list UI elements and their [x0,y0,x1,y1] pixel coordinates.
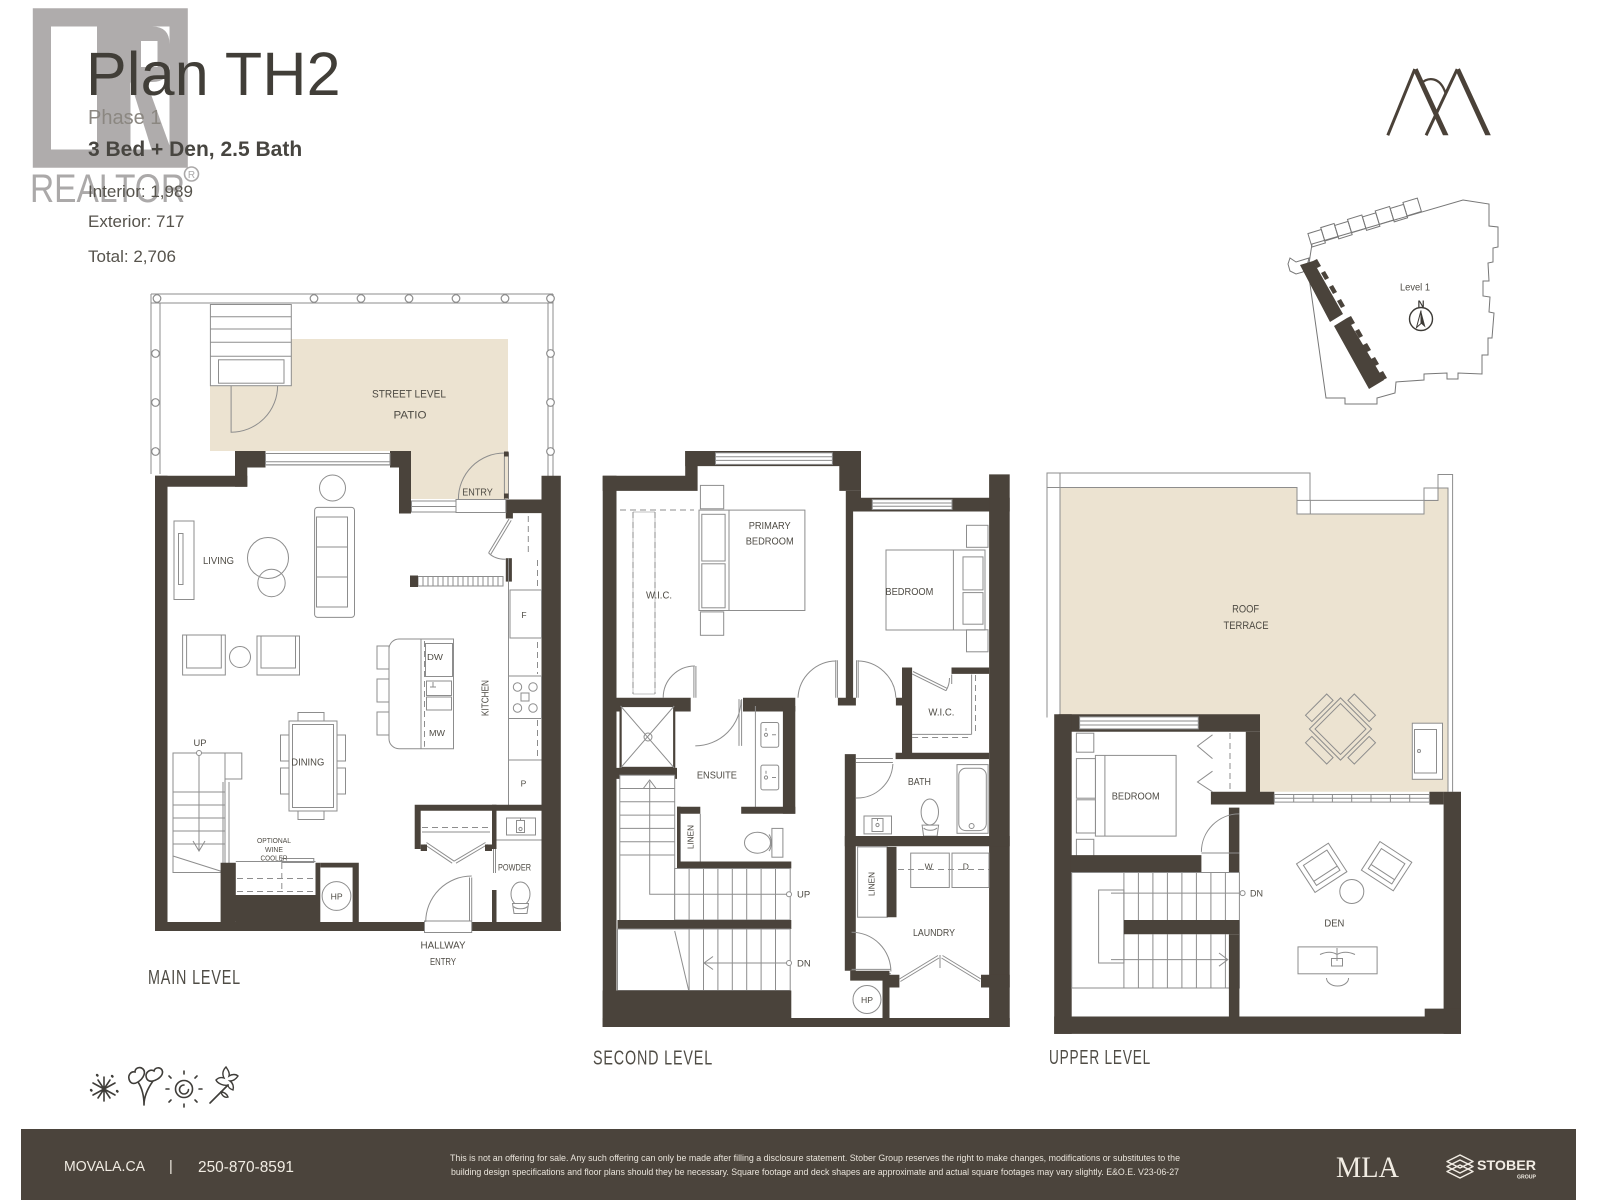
svg-text:MLA: MLA [1336,1151,1399,1184]
svg-text:ROOF: ROOF [1232,604,1259,616]
svg-text:UP: UP [194,738,207,749]
svg-text:Interior: 1,989: Interior: 1,989 [88,182,193,201]
svg-text:MW: MW [429,728,445,738]
svg-text:LAUNDRY: LAUNDRY [913,928,955,939]
svg-text:DW: DW [427,652,443,662]
svg-text:COOLER: COOLER [261,856,288,863]
svg-text:Exterior: 717: Exterior: 717 [88,212,184,231]
svg-text:STOBER: STOBER [1477,1158,1536,1173]
svg-text:STREET LEVEL: STREET LEVEL [372,388,446,400]
svg-text:Total: 2,706: Total: 2,706 [88,247,176,266]
svg-text:Phase 1: Phase 1 [88,107,161,129]
svg-text:PATIO: PATIO [394,409,427,421]
svg-text:MOVALA.CA: MOVALA.CA [64,1159,145,1175]
svg-text:W.I.C.: W.I.C. [646,591,672,602]
svg-text:UP: UP [797,890,810,901]
svg-text:F: F [521,610,526,620]
svg-text:LIVING: LIVING [203,556,234,567]
svg-text:WINE: WINE [265,847,283,854]
svg-text:BEDROOM: BEDROOM [746,537,794,548]
svg-text:GROUP: GROUP [1517,1175,1536,1181]
svg-text:KITCHEN: KITCHEN [481,680,492,716]
svg-text:ENTRY: ENTRY [430,956,456,968]
svg-text:POWDER: POWDER [498,863,531,873]
svg-text:P: P [521,779,527,789]
svg-text:Level 1: Level 1 [1400,283,1430,294]
svg-text:Plan TH2: Plan TH2 [86,40,341,108]
svg-text:D: D [963,862,969,872]
svg-text:W.I.C.: W.I.C. [928,708,954,719]
svg-text:TERRACE: TERRACE [1224,620,1269,632]
svg-text:LINEN: LINEN [686,825,695,849]
svg-text:MAIN LEVEL: MAIN LEVEL [148,966,241,989]
svg-text:DINING: DINING [291,757,324,768]
svg-text:N: N [1418,299,1425,310]
svg-text:3 Bed + Den, 2.5 Bath: 3 Bed + Den, 2.5 Bath [88,138,302,161]
svg-text:HALLWAY: HALLWAY [421,940,466,952]
svg-text:DEN: DEN [1324,918,1344,930]
svg-text:|: | [169,1159,173,1175]
svg-text:ENTRY: ENTRY [462,488,493,499]
svg-text:UPPER LEVEL: UPPER LEVEL [1049,1046,1151,1069]
svg-text:BATH: BATH [908,777,931,788]
svg-text:W: W [925,862,933,872]
svg-text:R: R [188,170,195,181]
svg-text:This is not an offering for sa: This is not an offering for sale. Any su… [450,1152,1180,1163]
svg-text:BEDROOM: BEDROOM [885,587,933,598]
svg-text:building design specifications: building design specifications and floor… [451,1166,1179,1177]
svg-text:OPTIONAL: OPTIONAL [257,838,291,845]
svg-text:LINEN: LINEN [868,872,877,896]
svg-text:250-870-8591: 250-870-8591 [198,1159,294,1176]
svg-text:SECOND LEVEL: SECOND LEVEL [593,1047,713,1070]
svg-text:ENSUITE: ENSUITE [697,770,737,781]
svg-text:HP: HP [861,995,873,1005]
svg-text:PRIMARY: PRIMARY [749,521,791,532]
svg-text:BEDROOM: BEDROOM [1112,792,1160,803]
svg-text:HP: HP [331,892,343,902]
svg-text:DN: DN [797,959,811,970]
svg-text:DN: DN [1250,889,1263,899]
